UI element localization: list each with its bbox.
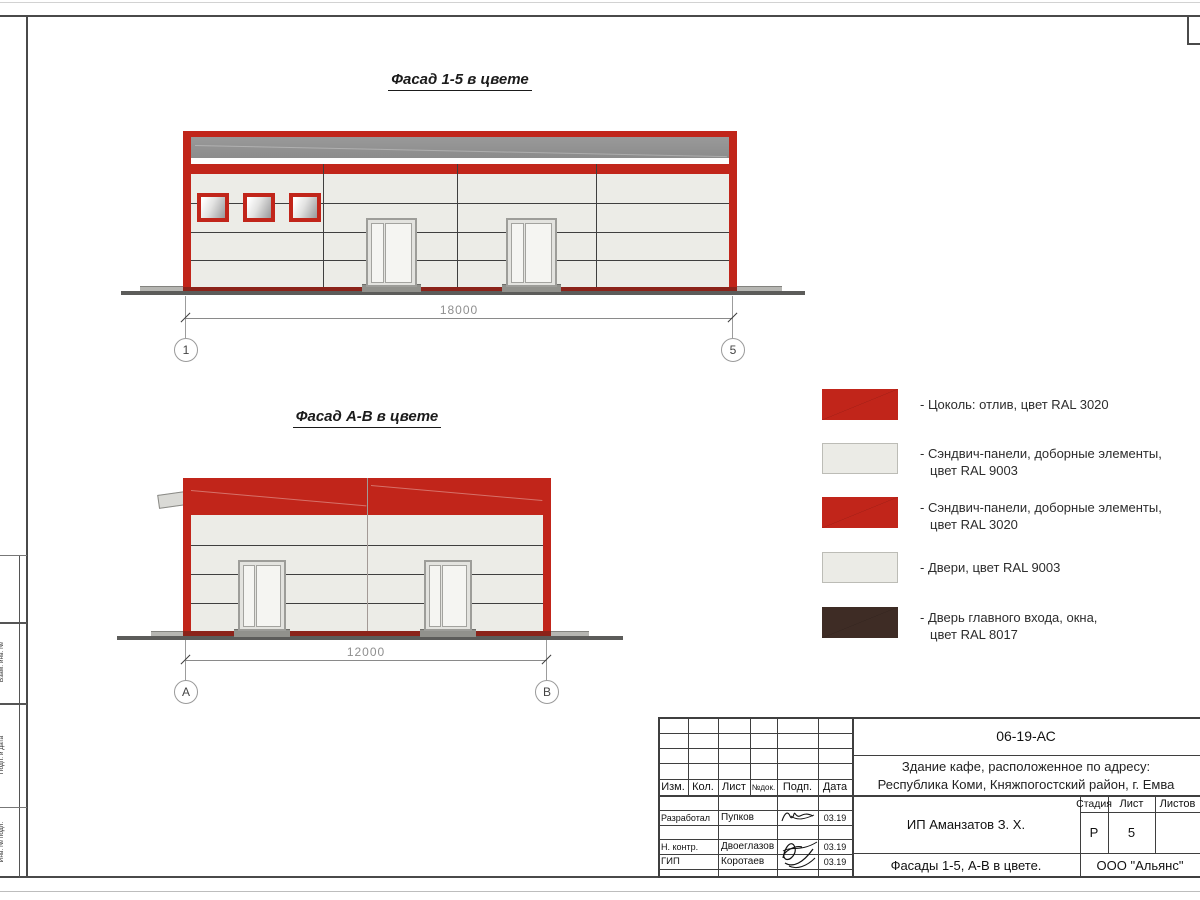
corner-trim-left bbox=[183, 478, 191, 631]
tb-company: ООО "Альянс" bbox=[1080, 853, 1200, 878]
panel-joint-vertical bbox=[367, 478, 368, 631]
axis-bubble-5: 5 bbox=[721, 338, 745, 362]
paper-edge-bottom bbox=[0, 891, 1200, 892]
legend-swatch bbox=[822, 607, 898, 638]
drawing-sheet: Взам. инв. № Подп. и дата Инв. № подл. Ф… bbox=[0, 0, 1200, 900]
grid-line bbox=[658, 763, 852, 764]
door-leaf-wide bbox=[256, 565, 281, 627]
dimension-text: 12000 bbox=[185, 645, 547, 659]
grid-line bbox=[658, 795, 852, 797]
tb-name: Двоеглазов bbox=[718, 839, 777, 854]
tb-header-ndok: №док. bbox=[750, 779, 777, 795]
grid-line bbox=[658, 748, 852, 749]
frame-side-label: Взам. инв. № bbox=[0, 632, 6, 692]
frame-border-top bbox=[0, 15, 1200, 17]
door-leaf-narrow bbox=[511, 223, 524, 283]
tb-date: 03.19 bbox=[818, 854, 852, 869]
door-leaf-narrow bbox=[243, 565, 255, 627]
grid-line bbox=[0, 807, 27, 808]
tb-project-line2: Республика Коми, Княжпогостский район, г… bbox=[852, 776, 1200, 794]
frame-corner-box bbox=[1187, 15, 1200, 45]
wall-panels bbox=[191, 174, 729, 287]
tb-stage-label: Стадия bbox=[1080, 795, 1108, 812]
door-leaf-wide bbox=[385, 223, 412, 283]
panel-joint-vertical bbox=[596, 164, 597, 287]
tb-header-list: Лист bbox=[718, 779, 750, 795]
plinth-strip bbox=[183, 287, 737, 291]
legend-label-line2: цвет RAL 8017 bbox=[920, 626, 1097, 643]
legend-item: - Сэндвич-панели, доборные элементы, цве… bbox=[822, 497, 1162, 533]
dimension-line bbox=[185, 660, 547, 661]
panel-seam-highlight bbox=[371, 485, 542, 501]
tb-client: ИП Аманзатов З. Х. bbox=[852, 795, 1080, 853]
title-block: Изм. Кол. Лист №док. Подп. Дата Разработ… bbox=[658, 717, 1200, 878]
grid-line bbox=[19, 555, 20, 878]
grid-line bbox=[0, 622, 27, 624]
red-band bbox=[183, 164, 737, 174]
tb-sheet-value: 5 bbox=[1108, 812, 1155, 853]
tb-date: 03.19 bbox=[818, 810, 852, 825]
door bbox=[238, 560, 286, 631]
door-leaf-narrow bbox=[429, 565, 441, 627]
legend-label-line2: цвет RAL 9003 bbox=[920, 462, 1162, 479]
legend-swatch bbox=[822, 443, 898, 474]
tb-doc-number: 06-19-АС bbox=[852, 717, 1200, 755]
facade-a-b-drawing bbox=[183, 478, 551, 637]
window bbox=[289, 193, 321, 222]
tb-header-data: Дата bbox=[818, 779, 852, 795]
legend-item: - Сэндвич-панели, доборные элементы, цве… bbox=[822, 443, 1162, 479]
paper-edge-top bbox=[0, 2, 1200, 3]
tb-sheet-label: Лист bbox=[1108, 795, 1155, 812]
window bbox=[197, 193, 229, 222]
door bbox=[506, 218, 557, 287]
grid-line bbox=[0, 703, 27, 705]
dimension-text: 18000 bbox=[185, 303, 733, 317]
panel-joint bbox=[191, 232, 729, 233]
panel-seam-highlight bbox=[195, 145, 727, 157]
panel-joint-vertical bbox=[457, 164, 458, 287]
door bbox=[424, 560, 472, 631]
facade-bottom-title: Фасад А-В в цвете bbox=[207, 408, 527, 425]
frame-side-label: Подп. и дата bbox=[0, 725, 6, 785]
corner-trim-left bbox=[183, 131, 191, 287]
legend-swatch bbox=[822, 552, 898, 583]
legend-label: - Цоколь: отлив, цвет RAL 3020 bbox=[920, 396, 1109, 413]
grid-line bbox=[658, 869, 852, 870]
tb-name: Пупков bbox=[718, 810, 777, 825]
legend-label-line2: цвет RAL 3020 bbox=[920, 516, 1162, 533]
axis-bubble-a: А bbox=[174, 680, 198, 704]
corner-trim-right bbox=[729, 131, 737, 287]
signature bbox=[775, 836, 821, 872]
tb-role: Разработал bbox=[658, 810, 718, 825]
signature bbox=[778, 809, 818, 825]
frame-side-label: Инв. № подл. bbox=[0, 812, 6, 872]
legend-item: - Дверь главного входа, окна, цвет RAL 8… bbox=[822, 607, 1097, 643]
legend-item: - Двери, цвет RAL 9003 bbox=[822, 552, 1060, 583]
facade-bottom-title-text: Фасад А-В в цвете bbox=[293, 408, 441, 428]
legend-swatch bbox=[822, 389, 898, 420]
legend-label: - Дверь главного входа, окна, bbox=[920, 609, 1097, 626]
tb-header-kol: Кол. bbox=[688, 779, 718, 795]
frame-border-left bbox=[26, 15, 28, 878]
panel-seam-highlight bbox=[191, 490, 366, 506]
door bbox=[366, 218, 417, 287]
facade-top-title-text: Фасад 1-5 в цвете bbox=[388, 71, 531, 91]
axis-bubble-b: В bbox=[535, 680, 559, 704]
legend-swatch bbox=[822, 497, 898, 528]
tb-role: Н. контр. bbox=[658, 839, 718, 854]
grid-line bbox=[0, 555, 27, 556]
ground-line bbox=[121, 291, 805, 295]
panel-joint-vertical bbox=[323, 164, 324, 287]
legend-label: - Двери, цвет RAL 9003 bbox=[920, 559, 1060, 576]
legend-item: - Цоколь: отлив, цвет RAL 3020 bbox=[822, 389, 1109, 420]
window bbox=[243, 193, 275, 222]
tb-date: 03.19 bbox=[818, 839, 852, 854]
tb-stage-value: Р bbox=[1080, 812, 1108, 853]
grid-line bbox=[658, 825, 852, 826]
tb-project-line1: Здание кафе, расположенное по адресу: bbox=[852, 758, 1200, 776]
dimension-line bbox=[185, 318, 733, 319]
grid-line bbox=[658, 733, 852, 734]
door-leaf-wide bbox=[525, 223, 552, 283]
tb-sheets-label: Листов bbox=[1155, 795, 1200, 812]
door-leaf-narrow bbox=[371, 223, 384, 283]
legend-label: - Сэндвич-панели, доборные элементы, bbox=[920, 445, 1162, 462]
tb-header-podp: Подп. bbox=[777, 779, 818, 795]
axis-bubble-1: 1 bbox=[174, 338, 198, 362]
tb-sheet-title: Фасады 1-5, А-В в цвете. bbox=[852, 853, 1080, 878]
tb-project-name: Здание кафе, расположенное по адресу: Ре… bbox=[852, 755, 1200, 795]
gutter-band bbox=[191, 137, 729, 158]
corner-trim-right bbox=[543, 478, 551, 631]
tb-header-izm: Изм. bbox=[658, 779, 688, 795]
tb-role: ГИП bbox=[658, 854, 718, 869]
legend-label: - Сэндвич-панели, доборные элементы, bbox=[920, 499, 1162, 516]
facade-1-5-drawing bbox=[183, 131, 737, 291]
facade-top-title: Фасад 1-5 в цвете bbox=[300, 71, 620, 88]
tb-name: Коротаев bbox=[718, 854, 777, 869]
door-leaf-wide bbox=[442, 565, 467, 627]
panel-joint bbox=[191, 260, 729, 261]
